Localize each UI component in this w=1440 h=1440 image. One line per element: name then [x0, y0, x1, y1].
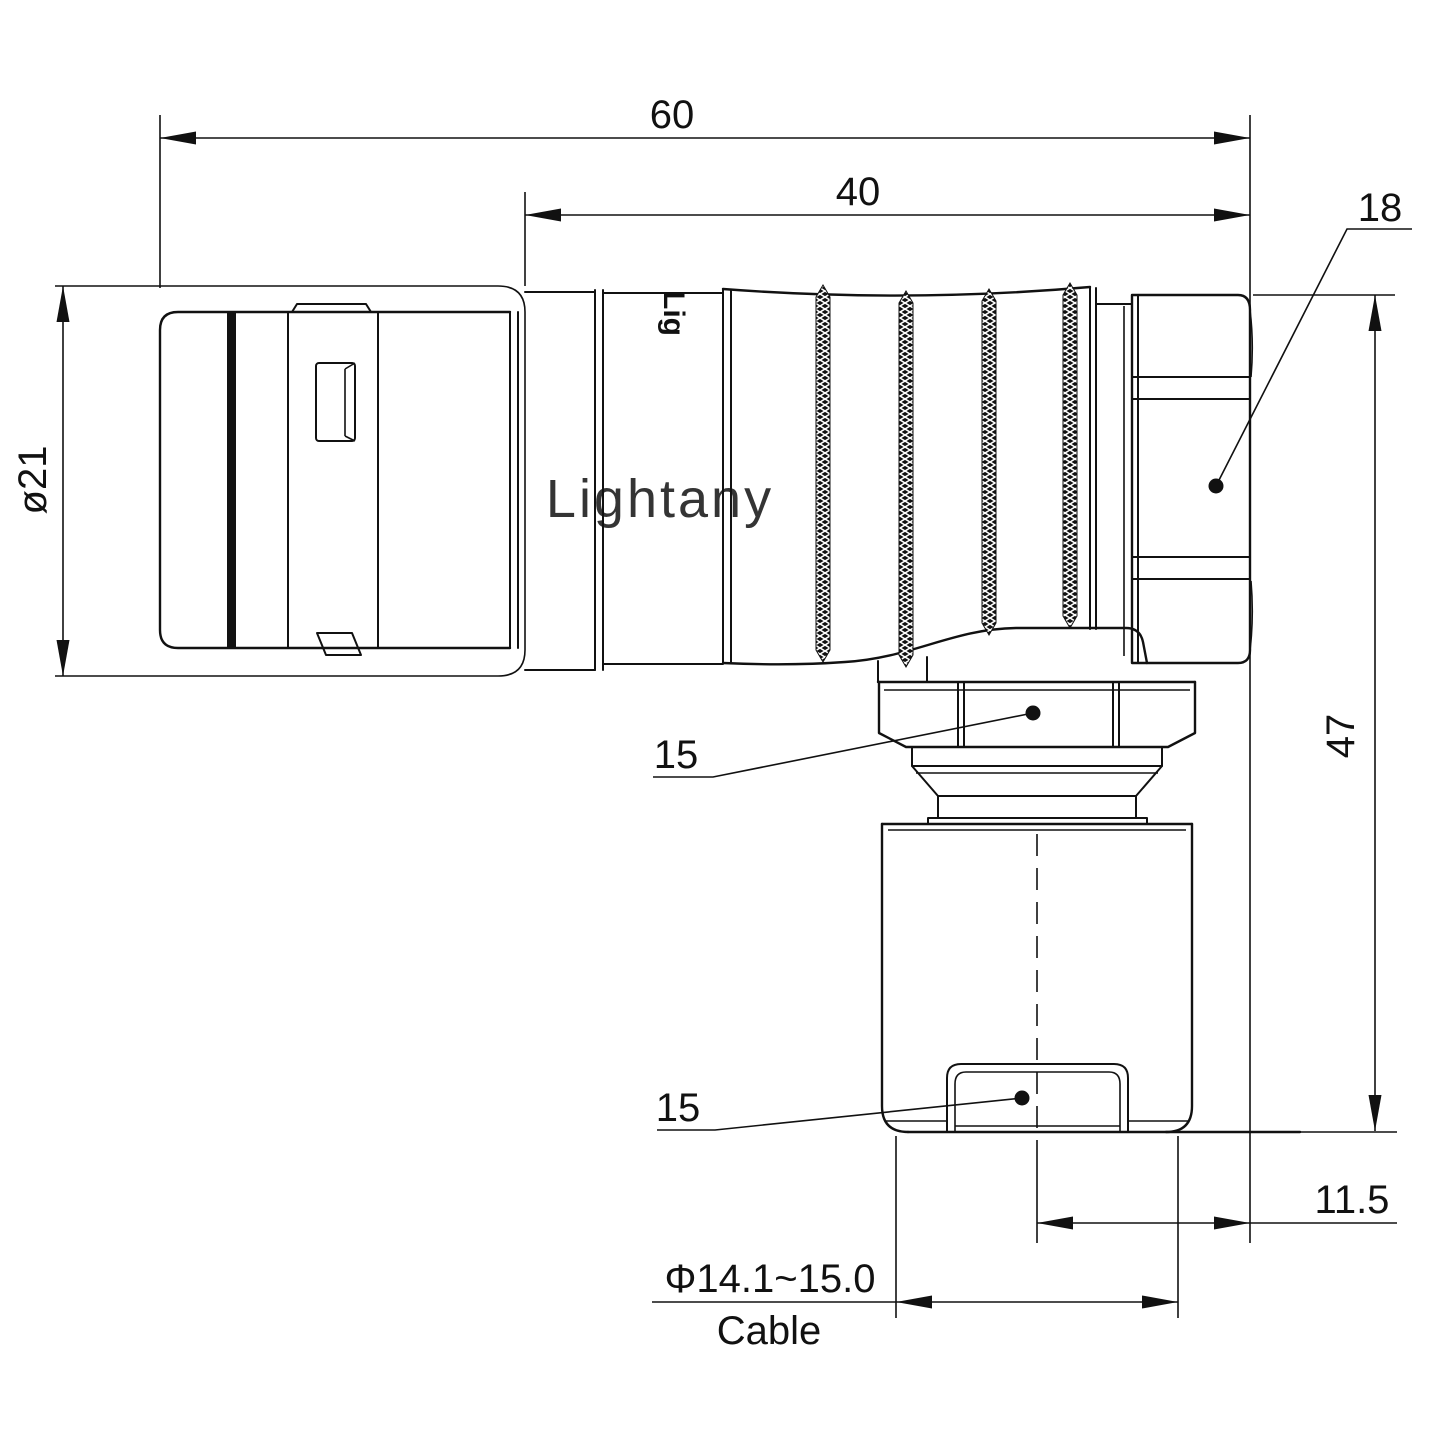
knurl-band — [816, 285, 830, 662]
dim-cable-diameter: Φ14.1~15.0 Cable — [652, 1136, 1178, 1353]
dim-label-11-5: 11.5 — [1315, 1178, 1390, 1222]
dim-label-60: 60 — [650, 93, 695, 137]
dim-label-cable: Cable — [717, 1309, 822, 1353]
knurl-band — [899, 291, 913, 667]
plug-window — [316, 363, 355, 441]
plug-index-band — [227, 313, 236, 648]
dim-offset-11-5: 11.5 — [1037, 1132, 1397, 1243]
dim-shell-diameter-21: ø21 — [11, 286, 70, 676]
leader-cable-clamp-15: 15 — [656, 1086, 1030, 1130]
engraved-brand-text: Lig — [657, 291, 690, 336]
shell-flange — [55, 286, 525, 676]
dim-label-15-lower: 15 — [656, 1086, 701, 1130]
knurled-grip — [723, 283, 1147, 667]
right-angle-connector-drawing: Lightany Lig — [0, 0, 1440, 1440]
dim-label-dia21: ø21 — [11, 446, 55, 515]
dim-label-cable-range: Φ14.1~15.0 — [665, 1257, 876, 1301]
dim-height-47: 47 — [1253, 295, 1395, 1131]
gland-neck — [912, 747, 1162, 824]
dim-label-47: 47 — [1319, 714, 1363, 759]
knurl-band — [982, 289, 996, 635]
dim-label-18: 18 — [1358, 186, 1403, 230]
technical-drawing-page: Lightany Lig — [0, 0, 1440, 1440]
plug-latch-wedge — [317, 633, 361, 655]
dim-grip-length-40: 40 — [525, 170, 1250, 286]
watermark-text: Lightany — [546, 469, 774, 529]
leader-backshell-18: 18 — [1209, 186, 1413, 494]
dim-label-40: 40 — [836, 170, 881, 214]
plug-shell — [160, 304, 518, 655]
dim-label-15-upper: 15 — [654, 733, 699, 777]
cable-clamp-body — [882, 824, 1300, 1132]
dim-overall-length-60: 60 — [160, 93, 1250, 1243]
knurl-band — [1063, 283, 1077, 628]
backshell-hex-nut — [1124, 295, 1252, 663]
